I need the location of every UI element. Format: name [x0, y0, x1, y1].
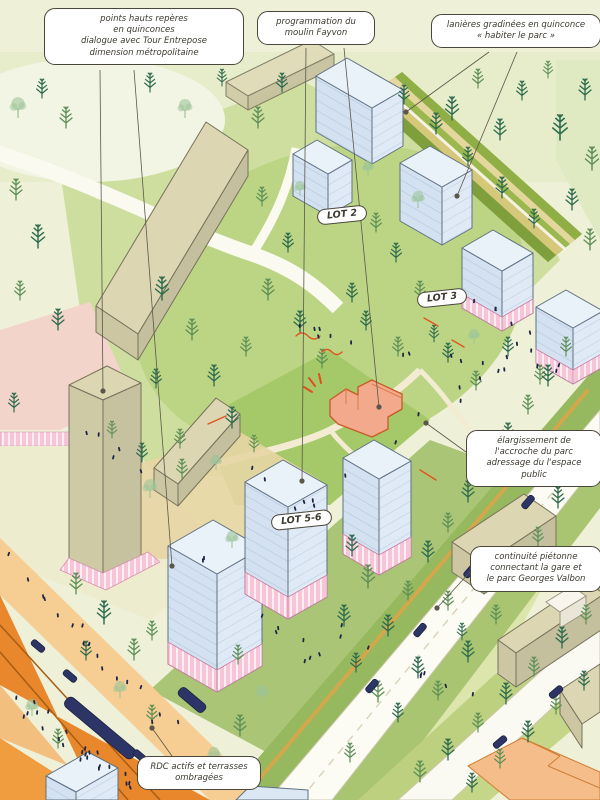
callout-line: dimension métropolitaine: [53, 48, 235, 59]
callout-line: points hauts repères: [53, 14, 235, 25]
callout-line: « habiter le parc »: [440, 31, 592, 42]
callout-line: continuité piétonne: [479, 552, 593, 563]
callout-line: élargissement de: [475, 436, 593, 447]
callout-line: connectant la gare et: [479, 563, 593, 574]
callout-rdc: RDC actifs et terrasses ombragées: [137, 756, 261, 790]
callout-continuite: continuité piétonne connectant la gare e…: [470, 546, 600, 592]
callout-elargissement: élargissement de l'accroche du parc adre…: [466, 430, 600, 487]
callout-line: lanières gradinées en quinconce: [440, 20, 592, 31]
callout-moulin: programmation du moulin Fayvon: [257, 11, 375, 45]
callout-line: dialogue avec Tour Entrepose: [53, 36, 235, 47]
callout-line: l'accroche du parc: [475, 447, 593, 458]
callout-line: programmation du: [266, 17, 366, 28]
callout-line: ombragées: [146, 773, 252, 784]
masterplan-illustration: points hauts repères en quinconces dialo…: [0, 0, 600, 800]
callout-points-hauts: points hauts repères en quinconces dialo…: [44, 8, 244, 65]
callout-line: le parc Georges Valbon: [479, 574, 593, 585]
plan-drawing: [0, 0, 600, 800]
callout-line: en quinconces: [53, 25, 235, 36]
callout-line: RDC actifs et terrasses: [146, 762, 252, 773]
callout-lanieres: lanières gradinées en quinconce « habite…: [431, 14, 600, 48]
callout-line: adressage du l'espace public: [475, 458, 593, 480]
callout-line: moulin Fayvon: [266, 28, 366, 39]
